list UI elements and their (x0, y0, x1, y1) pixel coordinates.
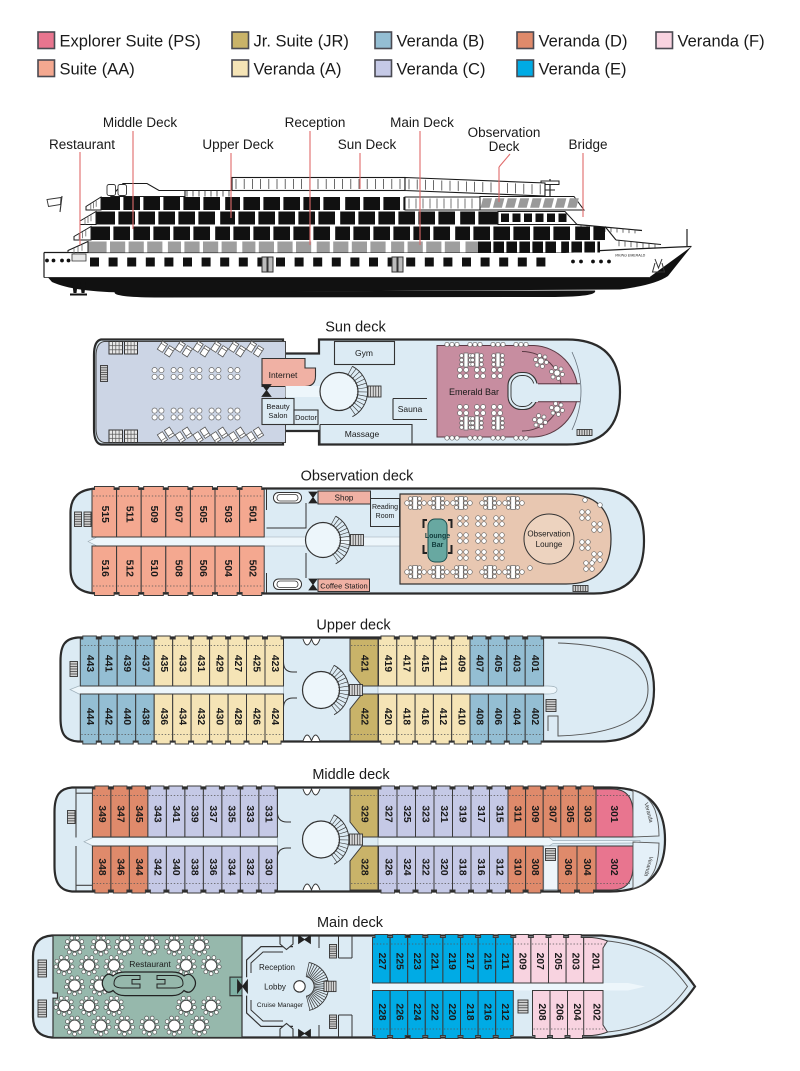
svg-text:215: 215 (481, 953, 492, 970)
svg-text:311: 311 (511, 806, 522, 823)
svg-text:436: 436 (158, 708, 169, 725)
svg-text:417: 417 (400, 655, 411, 672)
svg-text:307: 307 (547, 805, 558, 822)
svg-text:501: 501 (246, 506, 257, 523)
svg-text:338: 338 (189, 858, 200, 875)
svg-text:Beauty: Beauty (266, 402, 290, 411)
svg-text:433: 433 (176, 655, 187, 672)
svg-text:430: 430 (213, 708, 224, 725)
svg-text:Jr. Suite (JR): Jr. Suite (JR) (254, 33, 349, 51)
svg-text:422: 422 (359, 708, 370, 725)
svg-text:228: 228 (376, 1003, 387, 1020)
svg-text:424: 424 (269, 708, 280, 725)
svg-text:Sun Deck: Sun Deck (338, 137, 397, 152)
svg-text:444: 444 (84, 708, 95, 725)
svg-text:420: 420 (382, 708, 393, 725)
svg-text:208: 208 (536, 1003, 547, 1020)
svg-text:332: 332 (244, 858, 255, 875)
svg-text:205: 205 (552, 953, 563, 970)
svg-text:206: 206 (553, 1003, 564, 1020)
svg-text:Salon: Salon (268, 411, 287, 420)
svg-text:345: 345 (133, 805, 144, 822)
svg-text:204: 204 (571, 1003, 582, 1020)
svg-text:Bar: Bar (432, 542, 444, 549)
svg-text:437: 437 (139, 655, 150, 672)
svg-text:Shop: Shop (335, 494, 354, 503)
svg-text:Middle deck: Middle deck (312, 767, 390, 783)
svg-text:443: 443 (84, 655, 95, 672)
svg-text:410: 410 (455, 708, 466, 725)
svg-text:Doctor: Doctor (295, 413, 318, 422)
svg-text:222: 222 (429, 1003, 440, 1020)
svg-text:Lounge: Lounge (536, 540, 563, 549)
svg-text:440: 440 (121, 708, 132, 725)
svg-text:505: 505 (197, 506, 208, 523)
svg-text:Lobby: Lobby (264, 983, 286, 992)
svg-text:438: 438 (139, 708, 150, 725)
svg-text:330: 330 (263, 858, 274, 875)
svg-text:421: 421 (359, 655, 370, 672)
svg-text:312: 312 (493, 858, 504, 875)
svg-text:VIKING EMERALD: VIKING EMERALD (615, 254, 646, 258)
svg-text:202: 202 (591, 1003, 602, 1020)
svg-text:506: 506 (197, 560, 208, 577)
svg-text:442: 442 (103, 708, 114, 725)
svg-text:419: 419 (382, 655, 393, 672)
svg-text:342: 342 (152, 858, 163, 875)
svg-text:331: 331 (263, 805, 274, 822)
svg-text:Reception: Reception (285, 115, 346, 130)
svg-text:349: 349 (96, 805, 107, 822)
svg-text:Veranda (E): Veranda (E) (539, 61, 627, 79)
svg-text:435: 435 (158, 655, 169, 672)
svg-text:Sauna: Sauna (398, 404, 423, 414)
svg-text:411: 411 (437, 655, 448, 672)
svg-text:344: 344 (133, 858, 144, 875)
svg-text:341: 341 (170, 805, 181, 822)
svg-text:343: 343 (152, 805, 163, 822)
svg-text:211: 211 (499, 953, 510, 970)
svg-text:209: 209 (517, 953, 528, 970)
svg-text:Restaurant: Restaurant (129, 959, 171, 969)
svg-text:334: 334 (226, 858, 237, 875)
svg-text:317: 317 (475, 805, 486, 822)
svg-text:Observation: Observation (468, 125, 541, 140)
svg-text:431: 431 (195, 655, 206, 672)
svg-text:329: 329 (359, 805, 370, 822)
svg-text:227: 227 (376, 953, 387, 970)
svg-text:Bridge: Bridge (568, 137, 607, 152)
svg-text:429: 429 (213, 655, 224, 672)
svg-text:340: 340 (170, 858, 181, 875)
svg-text:221: 221 (429, 953, 440, 970)
svg-text:203: 203 (569, 953, 580, 970)
svg-text:441: 441 (103, 655, 114, 672)
svg-text:Explorer Suite (PS): Explorer Suite (PS) (60, 33, 201, 51)
svg-text:Reception: Reception (259, 963, 295, 972)
svg-text:308: 308 (529, 858, 540, 875)
svg-text:339: 339 (189, 805, 200, 822)
svg-text:510: 510 (148, 560, 159, 577)
svg-text:217: 217 (464, 953, 475, 970)
svg-text:Gym: Gym (355, 348, 373, 358)
svg-text:Suite (AA): Suite (AA) (60, 61, 135, 79)
svg-text:Veranda (A): Veranda (A) (254, 61, 342, 79)
svg-text:309: 309 (529, 805, 540, 822)
svg-text:412: 412 (437, 708, 448, 725)
svg-text:504: 504 (222, 560, 233, 577)
svg-text:212: 212 (499, 1003, 510, 1020)
svg-text:327: 327 (382, 805, 393, 822)
svg-text:321: 321 (438, 805, 449, 822)
svg-text:216: 216 (481, 1003, 492, 1020)
svg-text:Massage: Massage (345, 429, 380, 439)
svg-text:223: 223 (411, 953, 422, 970)
svg-text:Veranda (D): Veranda (D) (539, 33, 628, 51)
svg-text:416: 416 (419, 708, 430, 725)
svg-text:336: 336 (207, 858, 218, 875)
svg-text:507: 507 (173, 506, 184, 523)
svg-text:348: 348 (96, 858, 107, 875)
svg-text:Veranda (C): Veranda (C) (397, 61, 486, 79)
svg-text:303: 303 (582, 805, 593, 822)
svg-text:201: 201 (589, 953, 600, 970)
svg-text:427: 427 (232, 655, 243, 672)
svg-text:325: 325 (401, 805, 412, 822)
svg-text:301: 301 (608, 805, 619, 822)
svg-text:302: 302 (608, 858, 619, 875)
svg-text:407: 407 (474, 655, 485, 672)
svg-text:326: 326 (382, 858, 393, 875)
svg-text:335: 335 (226, 805, 237, 822)
svg-text:305: 305 (564, 805, 575, 822)
svg-text:511: 511 (123, 506, 134, 523)
svg-text:Cruise Manager: Cruise Manager (257, 1002, 304, 1009)
svg-text:Room: Room (376, 513, 395, 520)
svg-text:Emerald Bar: Emerald Bar (449, 387, 499, 397)
svg-text:316: 316 (475, 858, 486, 875)
svg-text:508: 508 (173, 560, 184, 577)
svg-text:Observation: Observation (527, 530, 570, 539)
svg-text:439: 439 (121, 655, 132, 672)
svg-text:226: 226 (393, 1003, 404, 1020)
svg-text:304: 304 (581, 858, 592, 875)
svg-text:426: 426 (250, 708, 261, 725)
svg-text:406: 406 (492, 708, 503, 725)
svg-text:220: 220 (446, 1003, 457, 1020)
svg-text:512: 512 (123, 560, 134, 577)
svg-text:Upper deck: Upper deck (316, 618, 391, 634)
svg-text:347: 347 (115, 805, 126, 822)
svg-text:219: 219 (446, 953, 457, 970)
svg-text:502: 502 (246, 560, 257, 577)
svg-text:306: 306 (562, 858, 573, 875)
svg-text:434: 434 (176, 708, 187, 725)
svg-text:218: 218 (464, 1003, 475, 1020)
svg-text:Main deck: Main deck (317, 915, 384, 931)
svg-text:Middle Deck: Middle Deck (103, 115, 178, 130)
svg-text:403: 403 (511, 655, 522, 672)
svg-text:Sun deck: Sun deck (325, 320, 386, 336)
svg-text:Lounge: Lounge (425, 533, 450, 540)
svg-text:322: 322 (419, 858, 430, 875)
svg-text:Restaurant: Restaurant (49, 137, 115, 152)
svg-text:Coffee Station: Coffee Station (320, 582, 367, 591)
svg-text:509: 509 (148, 506, 159, 523)
svg-text:402: 402 (529, 708, 540, 725)
svg-text:346: 346 (115, 858, 126, 875)
svg-text:Upper Deck: Upper Deck (202, 137, 274, 152)
svg-text:Veranda (F): Veranda (F) (678, 33, 765, 51)
svg-text:423: 423 (269, 655, 280, 672)
svg-text:515: 515 (99, 506, 110, 523)
svg-text:425: 425 (250, 655, 261, 672)
svg-text:409: 409 (455, 655, 466, 672)
svg-text:310: 310 (511, 858, 522, 875)
svg-text:404: 404 (511, 708, 522, 725)
svg-text:415: 415 (419, 655, 430, 672)
svg-text:323: 323 (419, 805, 430, 822)
svg-text:207: 207 (534, 953, 545, 970)
svg-text:337: 337 (207, 805, 218, 822)
svg-text:Reading: Reading (372, 504, 398, 511)
svg-text:Internet: Internet (269, 370, 298, 380)
svg-text:405: 405 (492, 655, 503, 672)
svg-text:418: 418 (400, 708, 411, 725)
svg-text:324: 324 (401, 858, 412, 875)
svg-text:Deck: Deck (489, 139, 520, 154)
svg-text:225: 225 (393, 953, 404, 970)
svg-text:Main Deck: Main Deck (390, 115, 454, 130)
svg-text:224: 224 (411, 1003, 422, 1020)
svg-text:401: 401 (529, 655, 540, 672)
svg-text:408: 408 (474, 708, 485, 725)
svg-text:428: 428 (232, 708, 243, 725)
svg-text:328: 328 (359, 858, 370, 875)
svg-text:333: 333 (244, 805, 255, 822)
svg-text:319: 319 (456, 805, 467, 822)
svg-text:503: 503 (222, 506, 233, 523)
svg-text:432: 432 (195, 708, 206, 725)
svg-text:Veranda (B): Veranda (B) (397, 33, 485, 51)
svg-text:320: 320 (438, 858, 449, 875)
svg-text:318: 318 (456, 858, 467, 875)
svg-text:516: 516 (99, 560, 110, 577)
svg-text:315: 315 (493, 805, 504, 822)
svg-text:Observation deck: Observation deck (301, 469, 415, 485)
